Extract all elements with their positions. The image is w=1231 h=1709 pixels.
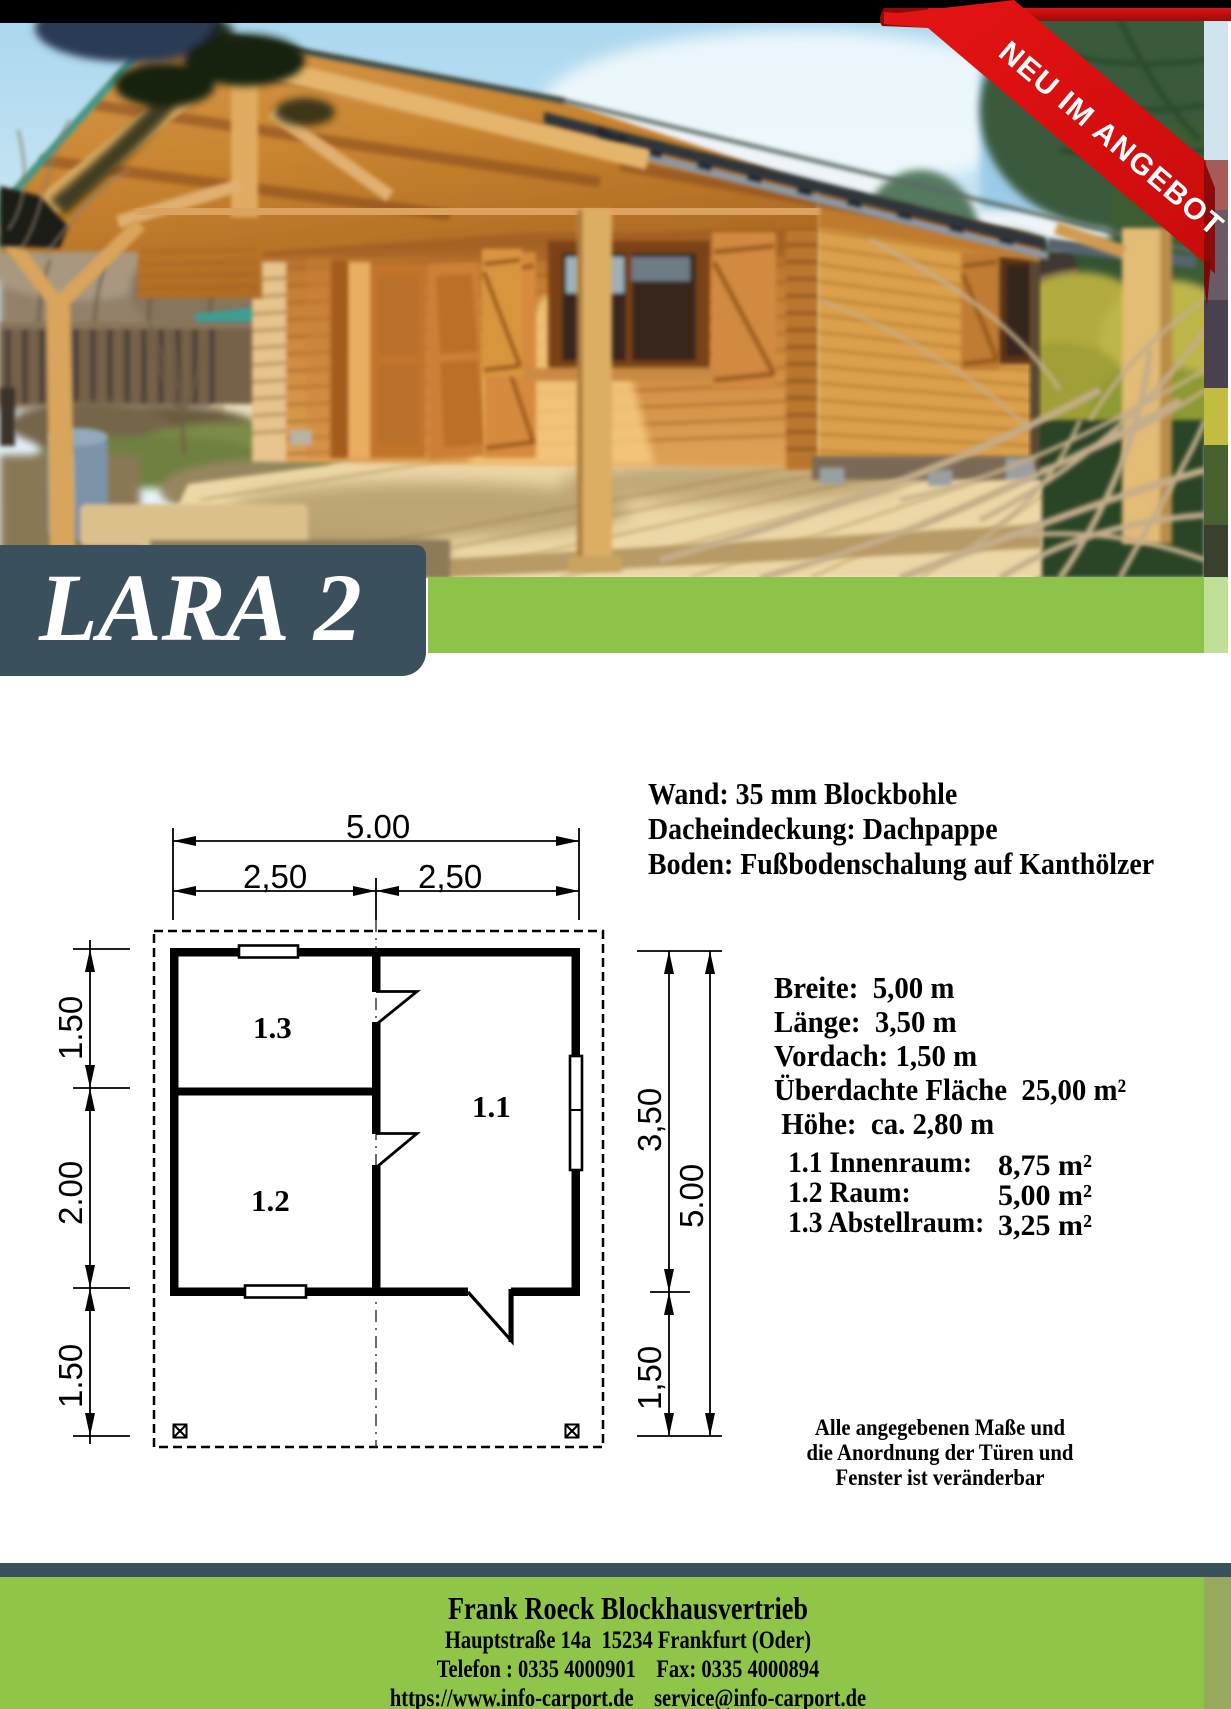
svg-text:1.1: 1.1 (472, 1089, 511, 1124)
svg-text:1.50: 1.50 (52, 996, 89, 1060)
svg-text:1.2: 1.2 (251, 1183, 290, 1218)
svg-text:2.00: 2.00 (52, 1161, 89, 1225)
svg-text:2,50: 2,50 (243, 858, 307, 895)
svg-text:1,50: 1,50 (631, 1346, 668, 1410)
svg-text:5.00: 5.00 (346, 808, 410, 845)
svg-text:2,50: 2,50 (418, 858, 482, 895)
svg-text:1.50: 1.50 (52, 1344, 89, 1408)
svg-text:5.00: 5.00 (673, 1164, 710, 1228)
svg-text:1.3: 1.3 (253, 1010, 292, 1045)
svg-text:3,50: 3,50 (631, 1088, 668, 1152)
